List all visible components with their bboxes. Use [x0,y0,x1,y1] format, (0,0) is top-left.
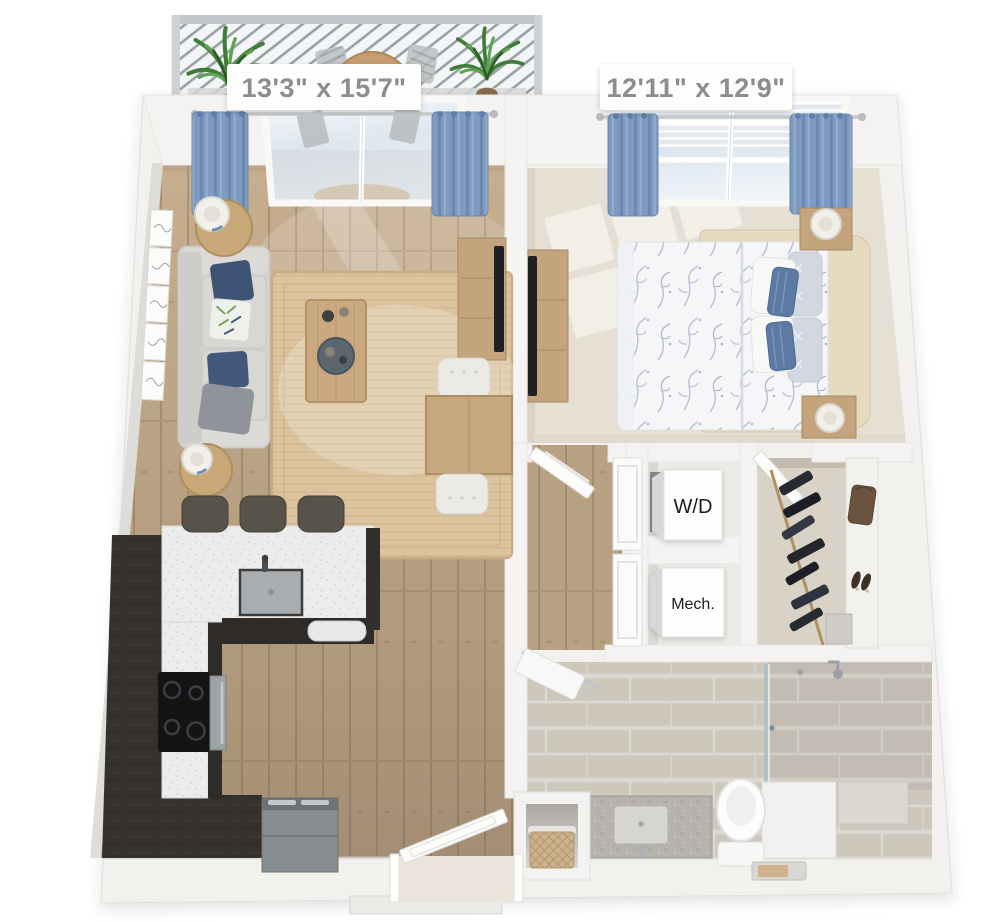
washer-dryer-unit: W/D [652,470,722,540]
living-room [141,99,540,558]
faucet [636,845,646,850]
shower-control [797,669,803,675]
mechanical-unit: Mech. [650,568,724,637]
nightstand [802,396,856,438]
nightstand [800,208,852,250]
bar-stool [182,496,228,532]
table-lamp [182,444,212,474]
dining-chair [436,474,488,514]
kitchen-cabinets-left [102,535,162,858]
storage-niche [514,792,590,880]
kitchen-cabinets-bottom [162,795,262,858]
vanity [588,796,712,858]
bedroom-dimensions-text: 12'11" x 12'9" [606,73,785,103]
basket [530,832,574,868]
dimension-label-living: 13'3" x 15'7" [227,64,421,110]
throw-pillow-navy [209,259,254,304]
pillow-blue [766,321,797,371]
curtain-right [790,113,852,214]
living-room-dimensions-text: 13'3" x 15'7" [241,73,406,103]
table-lamp [195,197,229,231]
bar-stool [298,496,344,532]
curtain-left [608,113,658,216]
dresser [528,250,568,402]
shower-floor [768,662,932,790]
cooktop [158,672,210,752]
dining-chair [438,358,490,398]
floor-plan-image: W/D Mech. [0,0,1000,922]
throw-pillow-gray [197,383,255,436]
candle [339,307,349,317]
candle [322,310,334,322]
throw-pillow-navy [207,351,249,390]
mechanical-label: Mech. [671,596,715,613]
tv [528,256,537,396]
side-table [180,444,232,496]
sofa [178,246,270,448]
entry-doorway [398,856,516,902]
bathroom-wall [605,645,932,662]
oven [210,676,226,750]
bath-tray [752,862,806,880]
dishwasher [308,621,366,641]
railing-top-rail [172,15,542,24]
closet-bench [826,614,852,644]
washer-dryer-label: W/D [674,496,713,518]
bar-stool [240,496,286,532]
throw-pillow-leaf [208,298,251,341]
handbag [847,485,876,526]
media-console [458,238,506,360]
shower-bench [838,782,908,824]
tv [494,246,504,352]
floor-plan: W/D Mech. [0,0,1000,922]
coffee-table [306,300,366,402]
dimension-label-bedroom: 12'11" x 12'9" [600,64,792,110]
toilet [717,779,765,866]
decor-tray [318,338,354,374]
refrigerator [262,798,338,872]
shower-half-wall [762,782,836,858]
curtain-right [432,111,488,216]
